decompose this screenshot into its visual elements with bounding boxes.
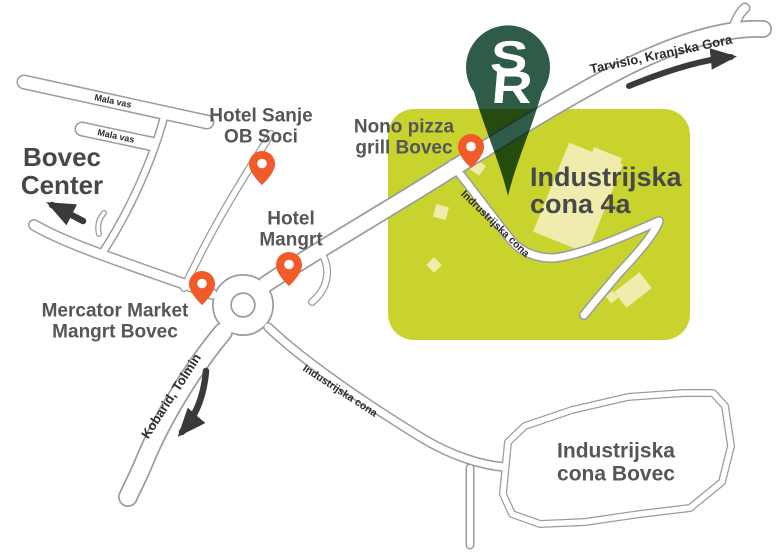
- poi-pin-hotel-sanje: [249, 151, 275, 185]
- hotel-mangrt-label: Hotel Mangrt: [259, 209, 322, 250]
- poi-pin-hotel-mangrt: [276, 252, 302, 286]
- poi-pin-mercator: [189, 271, 215, 305]
- nono-pizza-label: Nono pizza grill Bovec: [354, 117, 454, 158]
- industrijska-cona-4a-label: Industrijska cona 4a: [530, 164, 682, 218]
- road-fill-kobarid: [128, 332, 223, 497]
- road-industrijska-south: [268, 327, 504, 467]
- industrijska-cona-bovec-label: Industrijska cona Bovec: [557, 440, 675, 485]
- road-fill-industrijska-south: [268, 327, 504, 467]
- road-fill-roundabout: [222, 284, 264, 326]
- mercator-label: Mercator Market Mangrt Bovec: [42, 301, 189, 342]
- marker-sr-logo: SR: [480, 42, 537, 102]
- logo-letter-r: R: [491, 72, 534, 102]
- poi-pin-nono-pizza: [458, 134, 484, 168]
- bovec-center-direction-arrow: [52, 205, 83, 221]
- road-fill-bovec-center: [34, 225, 212, 294]
- bovec-location-map: SR Bovec Center Hotel Sanje OB Soci Nono…: [0, 0, 780, 553]
- hotel-sanje-label: Hotel Sanje OB Soci: [209, 106, 312, 147]
- bovec-center-label: Bovec Center: [21, 143, 103, 199]
